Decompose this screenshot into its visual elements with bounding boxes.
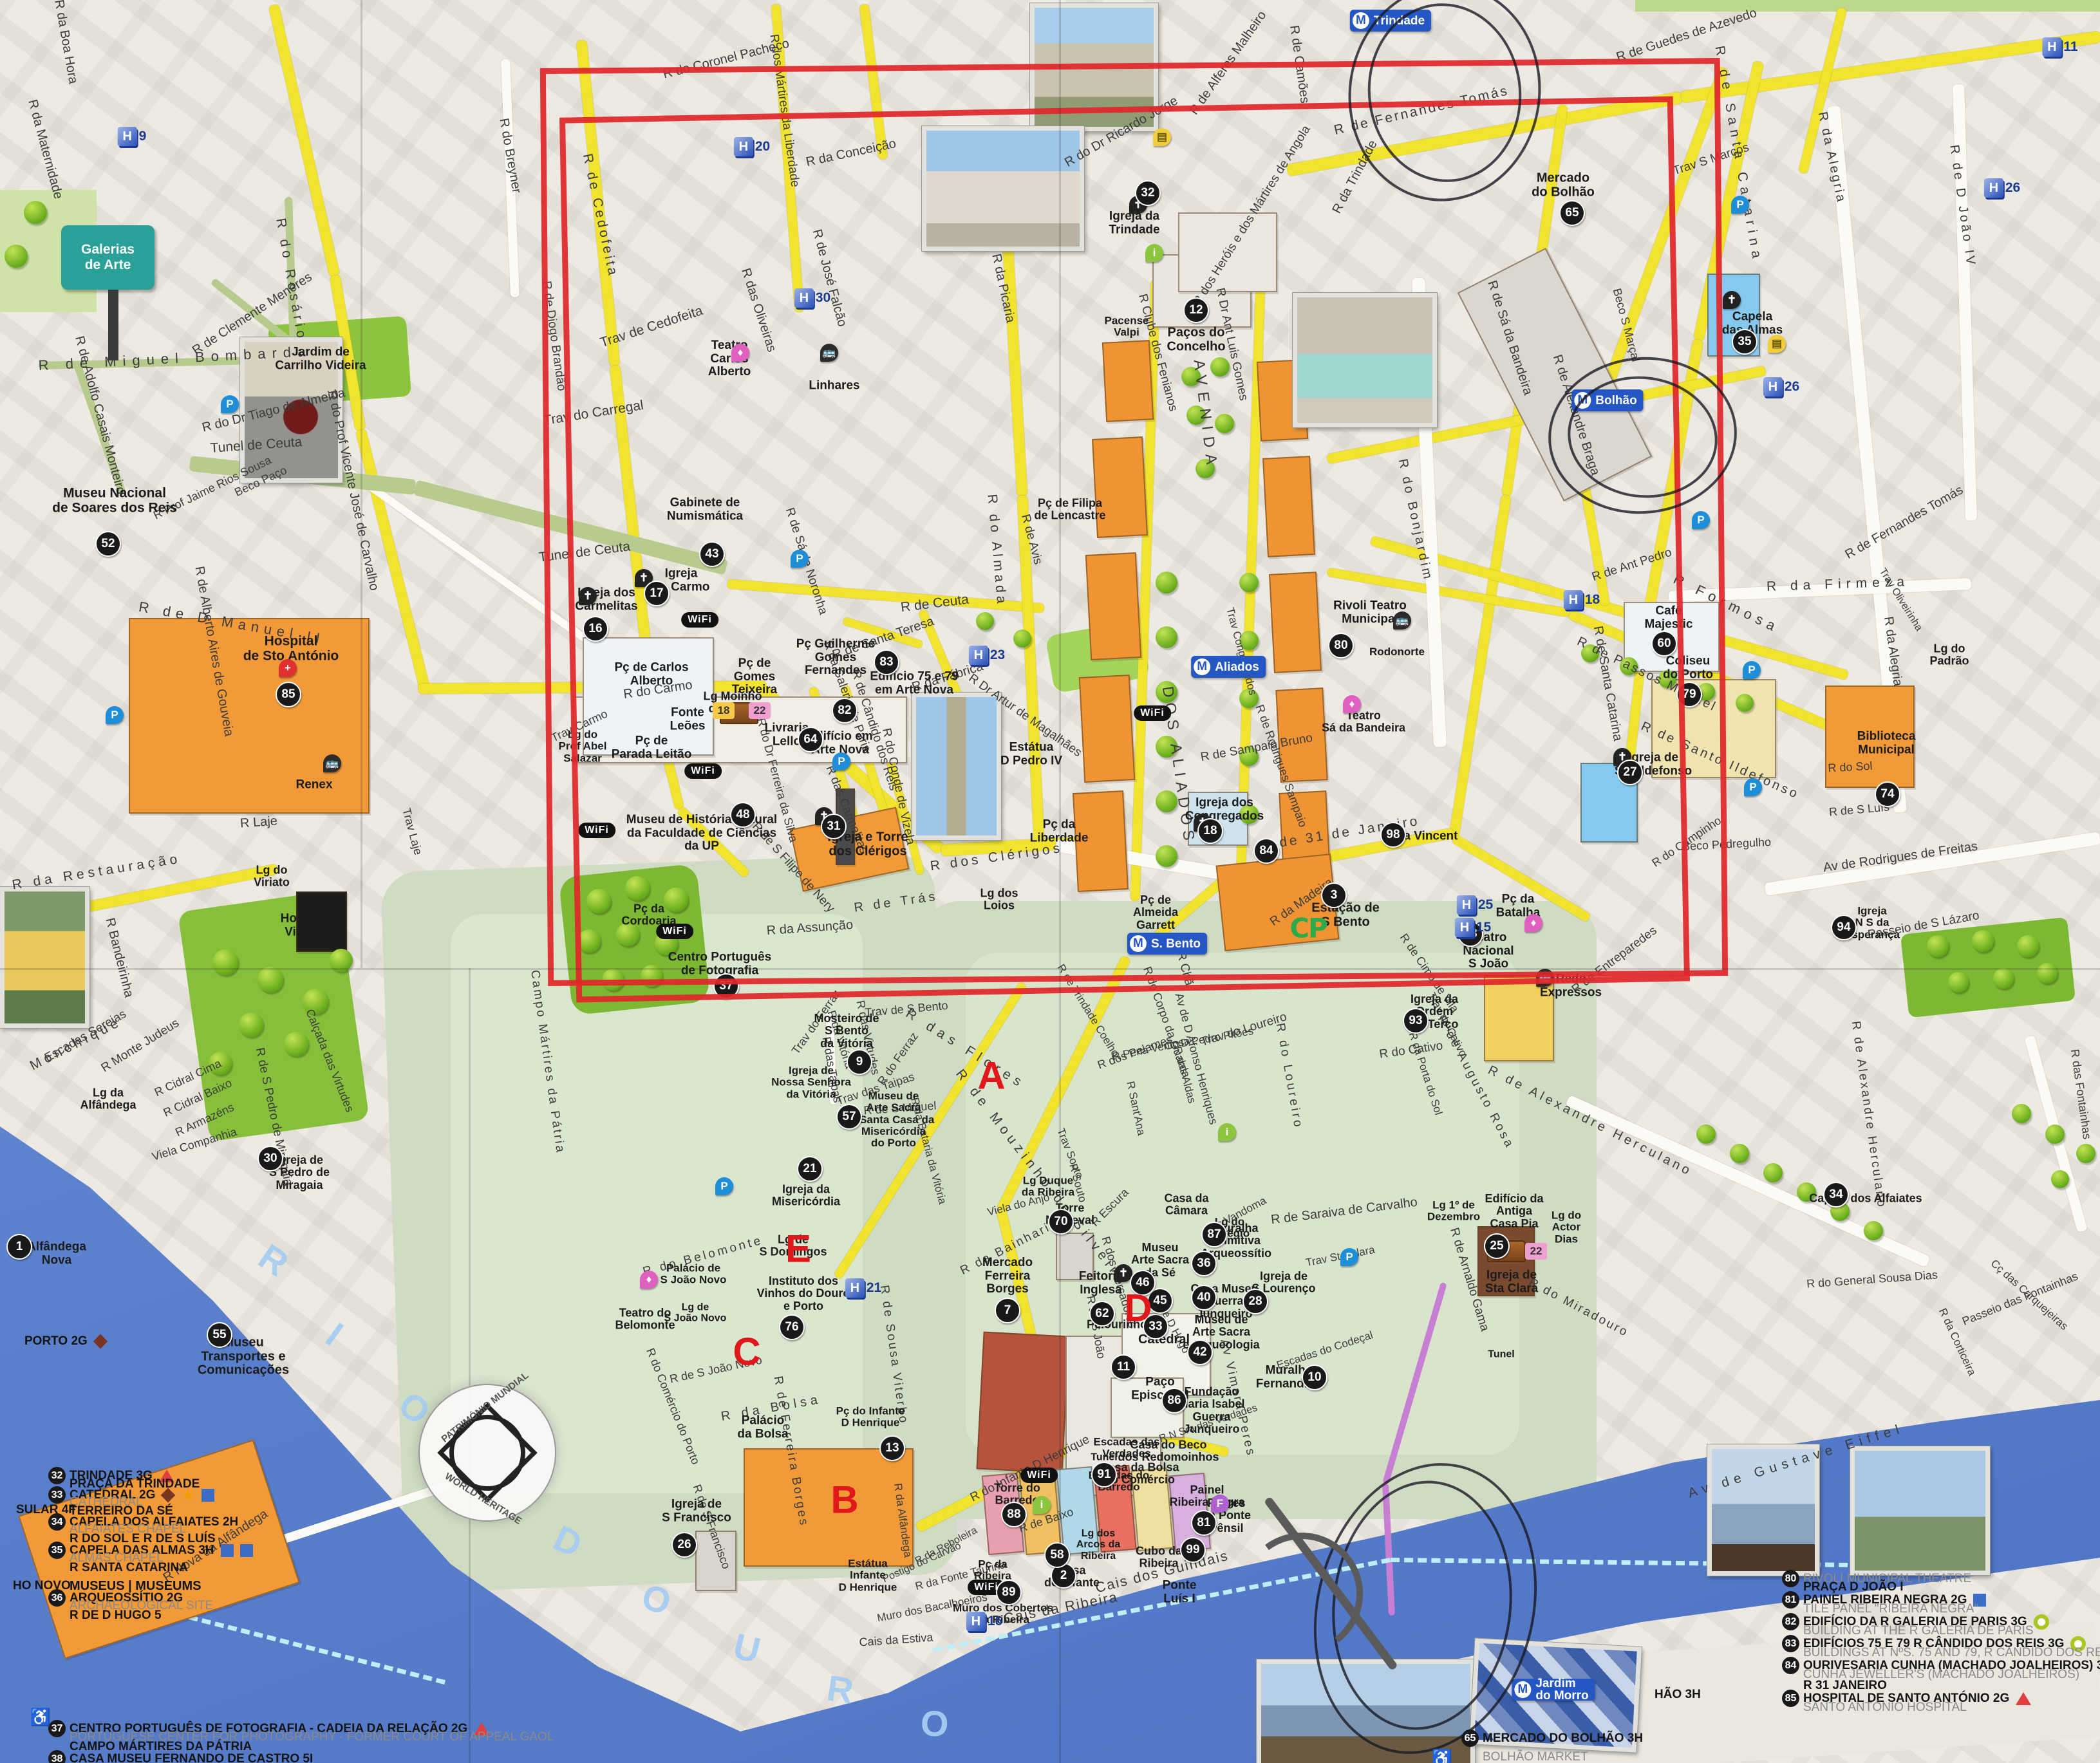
church-pin-icon[interactable]: ✝ (1723, 291, 1741, 309)
street-label: R da Boa Hora (51, 0, 80, 85)
poi-marker-89[interactable]: 89 (996, 1580, 1022, 1605)
funicular-pin-icon[interactable]: F (1211, 1495, 1229, 1513)
legend-text: R DE D HUGO 5 (70, 1609, 162, 1623)
parking-pin-icon[interactable]: P (1340, 1248, 1358, 1266)
legend-symbol-sq (221, 1544, 234, 1557)
legend-text: SULAR 4F (16, 1503, 76, 1517)
street-label: R Laje (239, 814, 277, 832)
poi-marker-93[interactable]: 93 (1403, 1008, 1429, 1034)
legend-partial-text: SULAR 4F (16, 1503, 76, 1517)
legend-text: BOLHÃO MARKET (1483, 1750, 1588, 1763)
hotel-number: 21 (867, 1280, 881, 1296)
street-label: R Bandeirinha (102, 917, 136, 1000)
tree-icon (284, 1032, 308, 1056)
hotel-icon[interactable]: H26 (1763, 377, 1799, 396)
tree-icon (5, 245, 28, 268)
poi-label: Igreja de Sta Clara (1485, 1269, 1538, 1295)
legend-symbol-dia (93, 1334, 108, 1349)
poi-label: Biblioteca Municipal (1857, 730, 1916, 756)
legend-number: 83 (1782, 1635, 1799, 1652)
tree-icon (2017, 935, 2039, 957)
tree-icon (1730, 1144, 1749, 1163)
poi-label: Pç da Ribeira (974, 1559, 1011, 1583)
tree-icon (24, 201, 47, 224)
zone-letter-B: B (830, 1478, 858, 1522)
street-label: Cç das Carquejeiras (1988, 1257, 2070, 1333)
poi-marker-70[interactable]: 70 (1048, 1209, 1074, 1235)
street-label: R de D João IV (1946, 144, 1978, 268)
poi-marker-74[interactable]: 74 (1875, 781, 1900, 807)
tree-icon (1864, 1221, 1883, 1240)
street-label: R do General Sousa Dias (1806, 1268, 1938, 1291)
hotel-h-glyph: H (966, 1612, 986, 1631)
poi-label: Igreja de S Francisco (662, 1498, 731, 1524)
poi-marker-13[interactable]: 13 (879, 1435, 905, 1461)
tram-line-badge: 22 (1525, 1243, 1547, 1260)
hospital-pin-icon[interactable]: + (279, 659, 297, 677)
river-letter: O (919, 1702, 950, 1745)
zone-letter-E: E (785, 1227, 811, 1271)
metro-name: Jardim do Morro (1535, 1677, 1588, 1702)
legend-center-row: 65MERCADO DO BOLHÃO 3H (1461, 1730, 1643, 1747)
poi-label: Lg 1º de Dezembro (1427, 1200, 1480, 1224)
wifi-badge: WiFi (1020, 1468, 1058, 1483)
street-label: R da Maternidade (24, 98, 65, 201)
legend-number: 84 (1782, 1657, 1799, 1674)
photo-image (5, 891, 85, 1023)
shopping-pin-icon[interactable]: ▤ (1768, 335, 1786, 353)
poi-marker-94[interactable]: 94 (1831, 915, 1857, 940)
poi-label: Mercado Ferreira Borges (982, 1256, 1033, 1296)
tree-icon (2037, 963, 2058, 984)
photo-inset[interactable] (1850, 1446, 1990, 1575)
poi-marker-21[interactable]: 21 (797, 1156, 823, 1182)
tree-icon (2045, 1124, 2065, 1144)
street-label: R de Alexandre Herculano (1848, 1020, 1889, 1209)
legend-symbol-tri (2016, 1692, 2031, 1705)
poi-marker-52[interactable]: 52 (95, 531, 121, 557)
zone-letter-C: C (733, 1330, 760, 1374)
legend-symbol-star: ★ (181, 1489, 195, 1502)
parking-pin-icon[interactable]: P (1731, 196, 1749, 214)
parking-pin-icon[interactable]: P (1743, 661, 1761, 679)
hotel-number: 26 (1785, 379, 1799, 395)
poi-marker-81[interactable]: 81 (1191, 1510, 1217, 1536)
poi-marker-30[interactable]: 30 (258, 1146, 283, 1171)
tree-icon (1972, 930, 1994, 952)
hotel-h-glyph: H (118, 127, 137, 146)
street-label: Cais da Estiva (859, 1631, 933, 1650)
hotel-icon[interactable]: H16 (966, 1612, 1002, 1631)
legend-center-row: BOLHÃO MARKET (1483, 1750, 1588, 1763)
poi-marker-42[interactable]: 42 (1187, 1339, 1213, 1365)
poi-marker-7[interactable]: 7 (995, 1298, 1020, 1323)
legend-partial-text: PORTO 2G (24, 1334, 107, 1348)
metro-logo-icon: M (1514, 1681, 1531, 1698)
photo-inset[interactable] (0, 887, 89, 1028)
poi-marker-26[interactable]: 26 (671, 1532, 697, 1558)
poi-label: Lg Duque da Ribeira (1022, 1175, 1074, 1199)
poi-marker-34[interactable]: 34 (1823, 1182, 1849, 1208)
poi-label: Igreja da Misericórdia (772, 1184, 840, 1209)
metro-station[interactable]: MJardim do Morro (1512, 1679, 1595, 1701)
street-label: R de Guedes de Azevedo (1615, 6, 1759, 65)
poi-label: Museu Nacional de Soares dos Reis (52, 486, 177, 515)
fold-crease (0, 968, 2100, 970)
hotel-icon[interactable]: H21 (845, 1278, 881, 1298)
poi-label: Cubo da Ribeira (1136, 1545, 1182, 1571)
hotel-icon[interactable]: H26 (1984, 178, 2020, 198)
legend-symbol-sq (202, 1489, 214, 1502)
poi-label: Alfândega Nova (27, 1240, 86, 1267)
tree-icon (1696, 1124, 1716, 1144)
bus-pin-icon[interactable]: 🚌 (323, 754, 341, 772)
tree-icon (2012, 1104, 2031, 1123)
hotel-number: 26 (2005, 180, 2020, 196)
tree-icon (2051, 1170, 2069, 1188)
poi-label: Jardim de Carrilho Videira (275, 346, 366, 372)
poi-marker-91[interactable]: 91 (1091, 1462, 1117, 1488)
legend-left-row: R SANTA CATARINA (70, 1561, 188, 1575)
legend-text: PORTO 2G (24, 1334, 88, 1348)
poi-label: Pç do Infante D Henrique (836, 1406, 905, 1430)
poi-label: Lg do Actor Dias (1552, 1209, 1581, 1245)
tree-icon (258, 967, 283, 993)
poi-label: Igreja de Nossa Senhora da Vitória (771, 1065, 851, 1100)
zone-letter-D: D (1124, 1286, 1152, 1330)
tree-icon (2076, 1144, 2095, 1163)
hotel-icon[interactable]: H9 (118, 127, 147, 146)
poi-label: Ponte Luís I (1163, 1579, 1197, 1605)
poi-marker-99[interactable]: 99 (1180, 1537, 1206, 1563)
legend-left-row: 38CASA MUSEU FERNANDO DE CASTRO 5I (48, 1750, 313, 1763)
legend-symbol-ring (2034, 1614, 2049, 1630)
photo-image (1855, 1451, 1985, 1571)
legend-number: 80 (1782, 1570, 1799, 1587)
zone-letter-A: A (977, 1054, 1005, 1098)
street-label: R do Breyner (496, 117, 523, 194)
poi-label: Palácio da Bolsa (737, 1414, 788, 1441)
park-area (1635, 0, 2100, 12)
legend-number: 81 (1782, 1591, 1799, 1609)
legend-symbol-dia (161, 1488, 176, 1502)
legend-number: 38 (48, 1750, 66, 1763)
river-letter: I (318, 1314, 351, 1354)
legend-text: MERCADO DO BOLHÃO 3H (1483, 1731, 1643, 1746)
tree-icon (1736, 694, 1754, 712)
info-pin-icon[interactable]: i (1218, 1123, 1236, 1141)
hotel-h-glyph: H (845, 1278, 865, 1298)
poi-marker-28[interactable]: 28 (1242, 1289, 1268, 1314)
metro-logo-icon: M (1353, 12, 1369, 29)
tree-icon (212, 949, 238, 975)
legend-number: 32 (48, 1467, 66, 1484)
poi-marker-88[interactable]: 88 (1001, 1502, 1027, 1527)
poi-label: Lg do Padrão (1929, 643, 1969, 668)
tree-icon (1763, 1163, 1783, 1182)
wheelchair-icon: ♿ (30, 1708, 51, 1728)
river-letter: U (729, 1625, 765, 1672)
hotel-icon[interactable]: H11 (2042, 37, 2077, 57)
legend-partial-text: HO NOVO (13, 1579, 71, 1593)
tree-icon (239, 1012, 263, 1037)
poi-label: Museu de Arte Sacra - Santa Casa da Mise… (853, 1090, 935, 1150)
legend-symbol-sq (240, 1544, 253, 1557)
poi-marker-87[interactable]: 87 (1201, 1222, 1227, 1247)
hotel-h-glyph: H (1984, 178, 2003, 198)
poi-label: Edifício da Antiga Casa Pia (1485, 1193, 1543, 1230)
poi-label: Lg do Viriato (254, 864, 290, 890)
street-label: R das Fontainhas (2068, 1049, 2094, 1141)
parking-pin-icon[interactable]: P (221, 395, 239, 413)
poi-marker-57[interactable]: 57 (836, 1104, 862, 1130)
street-label: R da Restauração (11, 851, 182, 893)
poi-marker-11[interactable]: 11 (1111, 1354, 1136, 1380)
poi-label: Horto das Virtudes (281, 912, 338, 938)
legend-text: R SANTA CATARINA (70, 1561, 188, 1575)
hotel-number: 9 (139, 129, 147, 144)
street-label: R de Fernandes Tomás (1842, 483, 1965, 563)
poi-label: Casa da Câmara (1164, 1193, 1208, 1218)
legend-number: 85 (1782, 1690, 1799, 1707)
poi-marker-76[interactable]: 76 (779, 1314, 805, 1340)
hotel-h-glyph: H (2042, 37, 2061, 57)
sign-text: Galeriasde Arte (81, 242, 135, 273)
poi-marker-55[interactable]: 55 (207, 1322, 232, 1348)
legend-left-row: R DE D HUGO 5 (70, 1609, 162, 1623)
theatre-pin-icon[interactable]: ♦ (640, 1271, 658, 1289)
street-label: R do Sol (1828, 760, 1873, 776)
parking-pin-icon[interactable]: P (1744, 778, 1762, 796)
fold-crease (469, 968, 471, 1763)
white-road (1764, 832, 2100, 896)
poi-marker-62[interactable]: 62 (1089, 1301, 1115, 1327)
poi-marker-25[interactable]: 25 (1484, 1233, 1510, 1259)
tree-icon (1927, 935, 1949, 957)
poi-label: Estátua Infante D Henrique (839, 1558, 897, 1593)
legend-text: HÃO 3H (1655, 1688, 1701, 1702)
poi-marker-58[interactable]: 58 (1044, 1542, 1070, 1568)
poi-marker-86[interactable]: 86 (1161, 1388, 1187, 1413)
poi-label: Renex (295, 779, 332, 792)
poi-label: Lg de S João Novo (664, 1302, 727, 1325)
tree-icon (1948, 972, 1969, 993)
poi-label: Mosteiro de S Bento da Vitória (814, 1012, 879, 1050)
poi-label: Hospital de Sto António (243, 634, 339, 663)
parking-pin-icon[interactable]: P (106, 706, 124, 724)
legend-text: HO NOVO (13, 1579, 71, 1593)
poi-label: Instituto dos Vinhos do Douro e Porto (757, 1275, 850, 1312)
river-letter: R (251, 1235, 296, 1285)
poi-marker-36[interactable]: 36 (1191, 1251, 1217, 1276)
yellow-road (1681, 31, 2100, 103)
poi-marker-10[interactable]: 10 (1302, 1365, 1327, 1390)
building-block (744, 1448, 914, 1567)
poi-marker-9[interactable]: 9 (847, 1049, 872, 1075)
poi-marker-35[interactable]: 35 (1732, 329, 1758, 355)
poi-label: Palácio de S João Novo (661, 1263, 727, 1287)
legend-partial-text: HÃO 3H (1655, 1688, 1701, 1702)
legend-text: SANTO ANTÓNIO HOSPITAL (1803, 1701, 1967, 1715)
poi-marker-85[interactable]: 85 (276, 682, 301, 707)
fold-crease (1059, 0, 1061, 1763)
street-label: Trav Laje (399, 807, 425, 856)
info-pin-icon[interactable]: i (1033, 1496, 1051, 1514)
poi-marker-40[interactable]: 40 (1191, 1285, 1217, 1311)
legend-text: CASA MUSEU FERNANDO DE CASTRO 5I (70, 1752, 313, 1763)
legend-right-row: SANTO ANTÓNIO HOSPITAL (1803, 1701, 1967, 1715)
hotel-number: 16 (988, 1614, 1002, 1629)
hotel-h-glyph: H (1763, 377, 1783, 396)
poi-label: Lg da Alfândega (80, 1087, 136, 1112)
legend-number: 82 (1782, 1613, 1799, 1630)
wheelchair-icon: ♿ (1432, 1749, 1452, 1763)
poi-label: Lg dos Arcos da Ribeira (1076, 1528, 1120, 1562)
tree-icon (1993, 968, 2014, 989)
legend-number: 33 (48, 1486, 66, 1504)
fold-crease (361, 0, 362, 968)
red-highlight-rectangle (559, 97, 1690, 1003)
parking-pin-icon[interactable]: P (715, 1177, 733, 1195)
poi-label: Tunel (1488, 1348, 1514, 1359)
world-heritage-emblem: PATRIMÓNIO MUNDIAL WORLD HERITAGE (418, 1384, 556, 1522)
hotel-number: 11 (2063, 39, 2077, 55)
legend-number: 35 (48, 1542, 66, 1559)
poi-marker-1[interactable]: 1 (6, 1234, 32, 1260)
galerias-de-arte-sign: Galeriasde Arte (61, 225, 155, 290)
porto-tourist-map: RIODOURO R da Boa HoraR da MaternidadeR … (0, 0, 2100, 1763)
legend-number: 65 (1461, 1730, 1479, 1747)
